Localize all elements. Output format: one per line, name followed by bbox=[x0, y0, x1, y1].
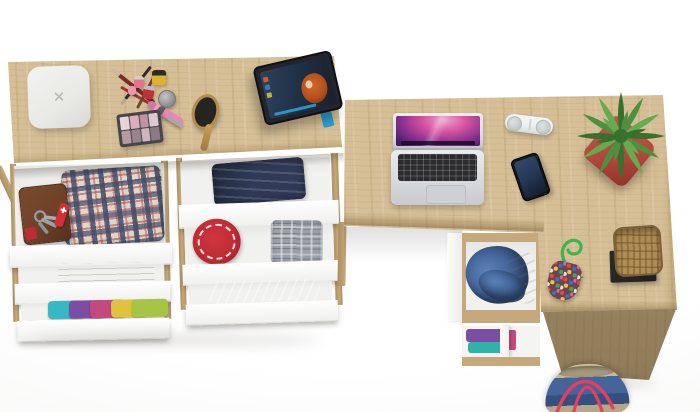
gray-plaid-shirt bbox=[271, 220, 323, 264]
folded-garment bbox=[508, 330, 516, 350]
speaker-seam bbox=[528, 119, 531, 130]
nail-polish-icon bbox=[134, 76, 144, 88]
folded-garment bbox=[132, 299, 168, 318]
eyeshadow-palette bbox=[116, 109, 164, 147]
speaker-grille-icon bbox=[506, 115, 523, 132]
eyeshadow-swatch bbox=[131, 129, 141, 143]
plaid-shirt bbox=[61, 165, 165, 246]
colorful-clothes-stack bbox=[63, 299, 168, 319]
eyeshadow-swatch bbox=[121, 130, 131, 144]
shelf-wood-edge bbox=[462, 357, 540, 366]
eyeshadow-swatch bbox=[141, 128, 151, 142]
wicker-basket bbox=[612, 224, 663, 277]
laptop-screen bbox=[396, 116, 480, 146]
movie-character-icon bbox=[298, 71, 330, 106]
knee-space-shadow bbox=[344, 227, 462, 317]
nail-polish-icon bbox=[128, 86, 136, 95]
laptop-keyboard-deck bbox=[391, 150, 484, 205]
plant bbox=[572, 84, 670, 182]
shelf-divider bbox=[500, 326, 509, 357]
floor-shadow bbox=[30, 334, 320, 346]
nail-polish-icon bbox=[152, 70, 166, 85]
x-logo-icon: ✕ bbox=[52, 89, 65, 104]
laptop-trackpad bbox=[426, 185, 466, 204]
nail-polish-icon bbox=[142, 85, 155, 100]
laptop-lid bbox=[393, 113, 483, 149]
vanity-drawer-column-right bbox=[176, 153, 343, 328]
eyeshadow-swatch bbox=[139, 114, 149, 128]
vanity-drawer-column-left bbox=[8, 161, 176, 344]
pedestal-front-panel bbox=[447, 233, 463, 321]
progress-bar-icon bbox=[274, 103, 316, 115]
charging-box: ✕ bbox=[27, 65, 91, 129]
laptop-keyboard bbox=[398, 154, 477, 181]
eyeshadow-swatch bbox=[149, 113, 159, 127]
scene: ✕ bbox=[0, 0, 700, 412]
speaker-grille-icon bbox=[535, 119, 552, 136]
tablet-screen bbox=[259, 57, 336, 119]
duffel-bag bbox=[545, 362, 629, 412]
drawer-front bbox=[186, 300, 339, 326]
eyeshadow-swatch bbox=[119, 116, 129, 130]
red-badge bbox=[25, 227, 38, 241]
open-desk-drawer bbox=[462, 233, 540, 323]
open-shelf bbox=[462, 326, 540, 366]
eyeshadow-swatch bbox=[150, 127, 160, 141]
duffel-straps-icon bbox=[545, 362, 629, 412]
eyeshadow-swatch bbox=[129, 115, 139, 129]
